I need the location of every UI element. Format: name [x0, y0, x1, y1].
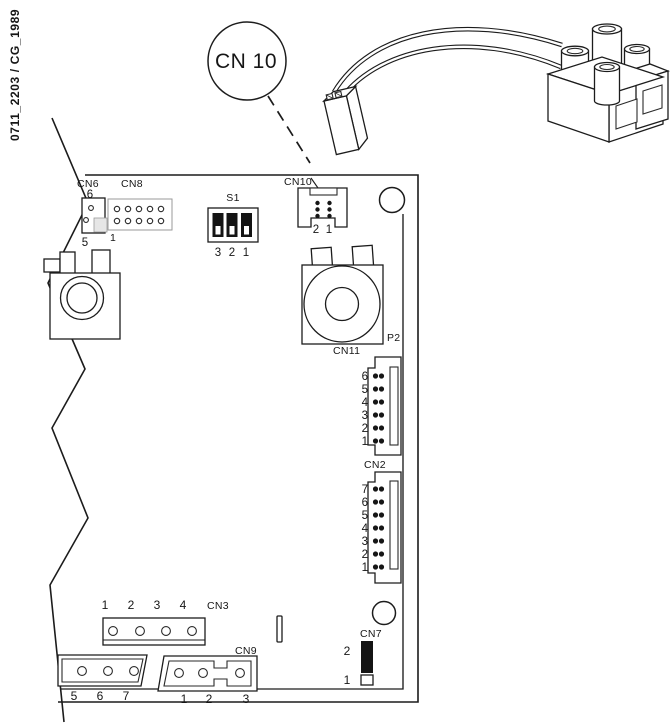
dip-slider: [230, 226, 235, 235]
edge-pin-7: 7: [123, 689, 130, 703]
s1-label: S1: [226, 192, 239, 204]
cn9-label: CN9: [235, 645, 257, 657]
cn11-connector: CN11 6 5 4 3 2 1: [333, 345, 401, 455]
s1-pin-2: 2: [229, 247, 235, 259]
cn2-connector: CN2 7 6 5 4 3 2 1: [362, 459, 401, 583]
schematic-page: 0711_2203 / CG_1989: [0, 0, 670, 728]
edge-connector: 5 6 7: [58, 655, 147, 703]
cn11-pin-3: 3: [362, 410, 368, 422]
cn10-connector: CN10 2 1: [284, 176, 347, 236]
mounting-hole-top: [380, 188, 405, 213]
cn2-pin-3: 3: [362, 536, 368, 548]
pin-dot: [89, 206, 94, 211]
cn3-pin-1: 1: [102, 598, 109, 612]
edge-pin-5: 5: [71, 689, 78, 703]
cn3-pin-4: 4: [180, 598, 187, 612]
terminal-block-assembly: [334, 24, 668, 142]
cn11-pin-4: 4: [362, 397, 369, 409]
cn11-pin-6: 6: [362, 371, 368, 383]
dip-slider: [216, 226, 221, 235]
cn6-connector: CN6 6 5: [77, 178, 107, 249]
cn9-pin-3: 3: [243, 692, 250, 706]
s1-dip-switch: S1 3 2 1: [208, 192, 258, 259]
cn9-pin-2: 2: [206, 692, 213, 706]
cn3-pin-3: 3: [154, 598, 161, 612]
dip-slider: [244, 226, 249, 235]
callout-cn10: CN 10: [208, 22, 310, 163]
cn8-label: CN8: [121, 178, 143, 190]
callout-label: CN 10: [215, 50, 277, 73]
callout-leader-line: [268, 96, 310, 163]
pin-dot: [84, 218, 89, 223]
cn7-pin-2: 2: [344, 644, 351, 658]
plug-housing: [322, 87, 369, 155]
cn9-connector: CN9 1 2 3: [158, 645, 257, 706]
edge-pin-6: 6: [97, 689, 104, 703]
screw-terminal-front: [595, 63, 620, 106]
cn7-connector: CN7 2 1: [344, 628, 382, 687]
cn2-label: CN2: [364, 459, 386, 471]
mounting-hole-bottom: [373, 602, 396, 625]
cn3-pin-2: 2: [128, 598, 135, 612]
potentiometer-p2: P2: [302, 245, 400, 344]
cn2-pin-6: 6: [362, 497, 368, 509]
cn7-pin-1: 1: [344, 673, 351, 687]
cn3-connector: 1 2 3 4 CN3: [102, 598, 229, 645]
wiring-diagram: 0711_2203 / CG_1989: [0, 0, 670, 728]
cn3-label: CN3: [207, 600, 229, 612]
cn11-pin-1: 1: [362, 436, 368, 448]
cn2-pin-7: 7: [362, 484, 368, 496]
cn2-pin-4: 4: [362, 523, 369, 535]
cn10-pin-1: 1: [326, 224, 332, 236]
slot-component: [277, 616, 282, 642]
cn2-pin-5: 5: [362, 510, 368, 522]
cn8-pin-1: 1: [110, 232, 116, 244]
cn9-pin-1: 1: [181, 692, 188, 706]
cn10-label: CN10: [284, 176, 312, 188]
s1-pin-3: 3: [215, 247, 221, 259]
doc-code-text: 0711_2203 / CG_1989: [8, 9, 22, 141]
cn2-pin-1: 1: [362, 562, 368, 574]
s1-pin-1: 1: [243, 247, 249, 259]
cn7-label: CN7: [360, 628, 382, 640]
cn8-connector: CN8 1: [108, 178, 172, 244]
cn6-pin-5: 5: [82, 237, 88, 249]
p2-label: P2: [387, 332, 400, 344]
wire-1: [334, 29, 562, 92]
cn11-label: CN11: [333, 345, 360, 357]
cn11-pin-5: 5: [362, 384, 368, 396]
potentiometer-left: [44, 250, 120, 339]
cn11-pin-2: 2: [362, 423, 368, 435]
cn7-jumper: [361, 641, 373, 673]
cn2-pin-2: 2: [362, 549, 368, 561]
cn10-pin-2: 2: [313, 224, 319, 236]
